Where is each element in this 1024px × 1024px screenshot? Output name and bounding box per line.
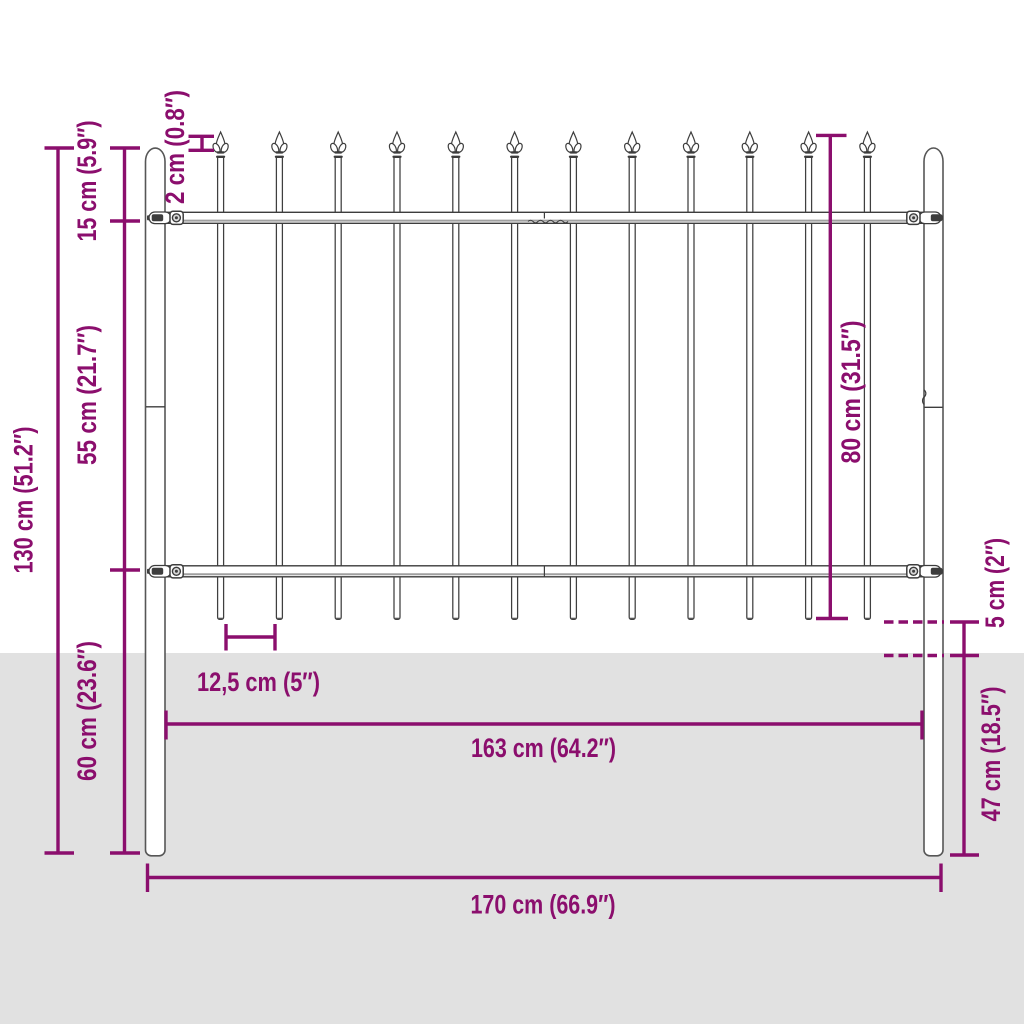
svg-text:130 cm (51.2″): 130 cm (51.2″)	[9, 427, 39, 574]
svg-text:80 cm (31.5″): 80 cm (31.5″)	[836, 321, 866, 464]
svg-text:60 cm (23.6″): 60 cm (23.6″)	[72, 641, 102, 781]
svg-text:5 cm (2″): 5 cm (2″)	[980, 538, 1010, 628]
svg-text:12,5 cm (5″): 12,5 cm (5″)	[197, 667, 320, 697]
svg-text:47 cm (18.5″): 47 cm (18.5″)	[976, 687, 1006, 822]
svg-text:2 cm (0.8″): 2 cm (0.8″)	[160, 90, 190, 204]
svg-text:15 cm (5.9″): 15 cm (5.9″)	[72, 121, 102, 242]
svg-text:170 cm (66.9″): 170 cm (66.9″)	[471, 890, 616, 920]
svg-text:55 cm (21.7″): 55 cm (21.7″)	[72, 325, 102, 465]
svg-text:163 cm (64.2″): 163 cm (64.2″)	[471, 733, 616, 763]
